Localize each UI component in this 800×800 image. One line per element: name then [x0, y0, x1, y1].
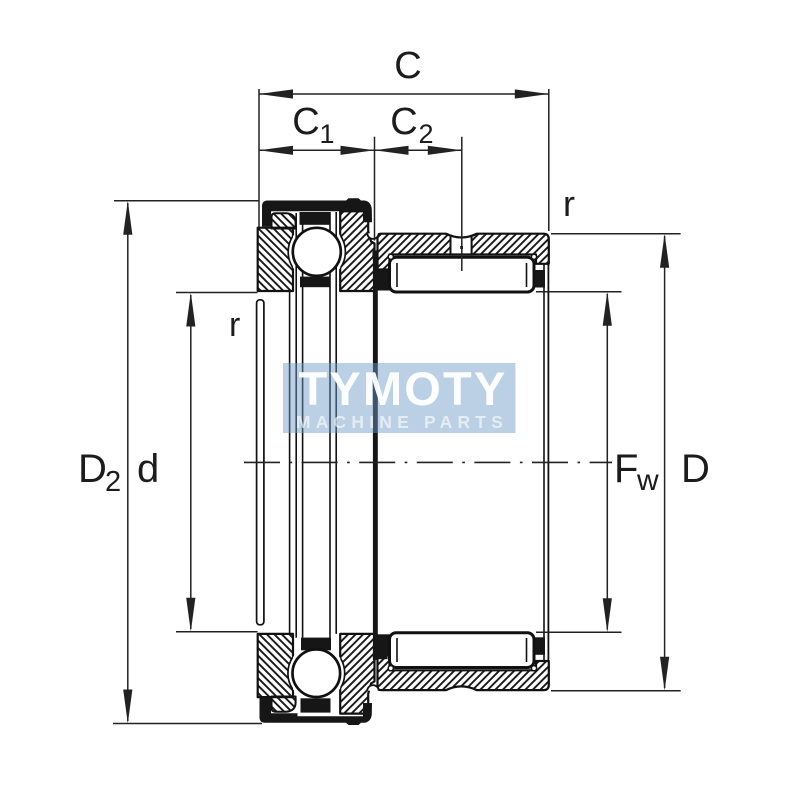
svg-text:r: r: [229, 306, 240, 344]
svg-text:r: r: [563, 183, 575, 224]
svg-text:C: C: [394, 45, 421, 87]
svg-text:w: w: [636, 464, 659, 497]
svg-text:F: F: [614, 447, 638, 491]
svg-text:C: C: [292, 101, 319, 143]
svg-text:d: d: [137, 447, 159, 491]
svg-text:C: C: [390, 101, 417, 143]
svg-text:D: D: [78, 447, 107, 491]
svg-text:2: 2: [418, 119, 433, 149]
svg-text:D: D: [681, 447, 710, 491]
svg-text:2: 2: [105, 466, 121, 498]
svg-text:1: 1: [319, 119, 334, 149]
svg-text:MACHINE PARTS: MACHINE PARTS: [296, 412, 508, 432]
svg-text:TYMOTY: TYMOTY: [298, 362, 507, 415]
